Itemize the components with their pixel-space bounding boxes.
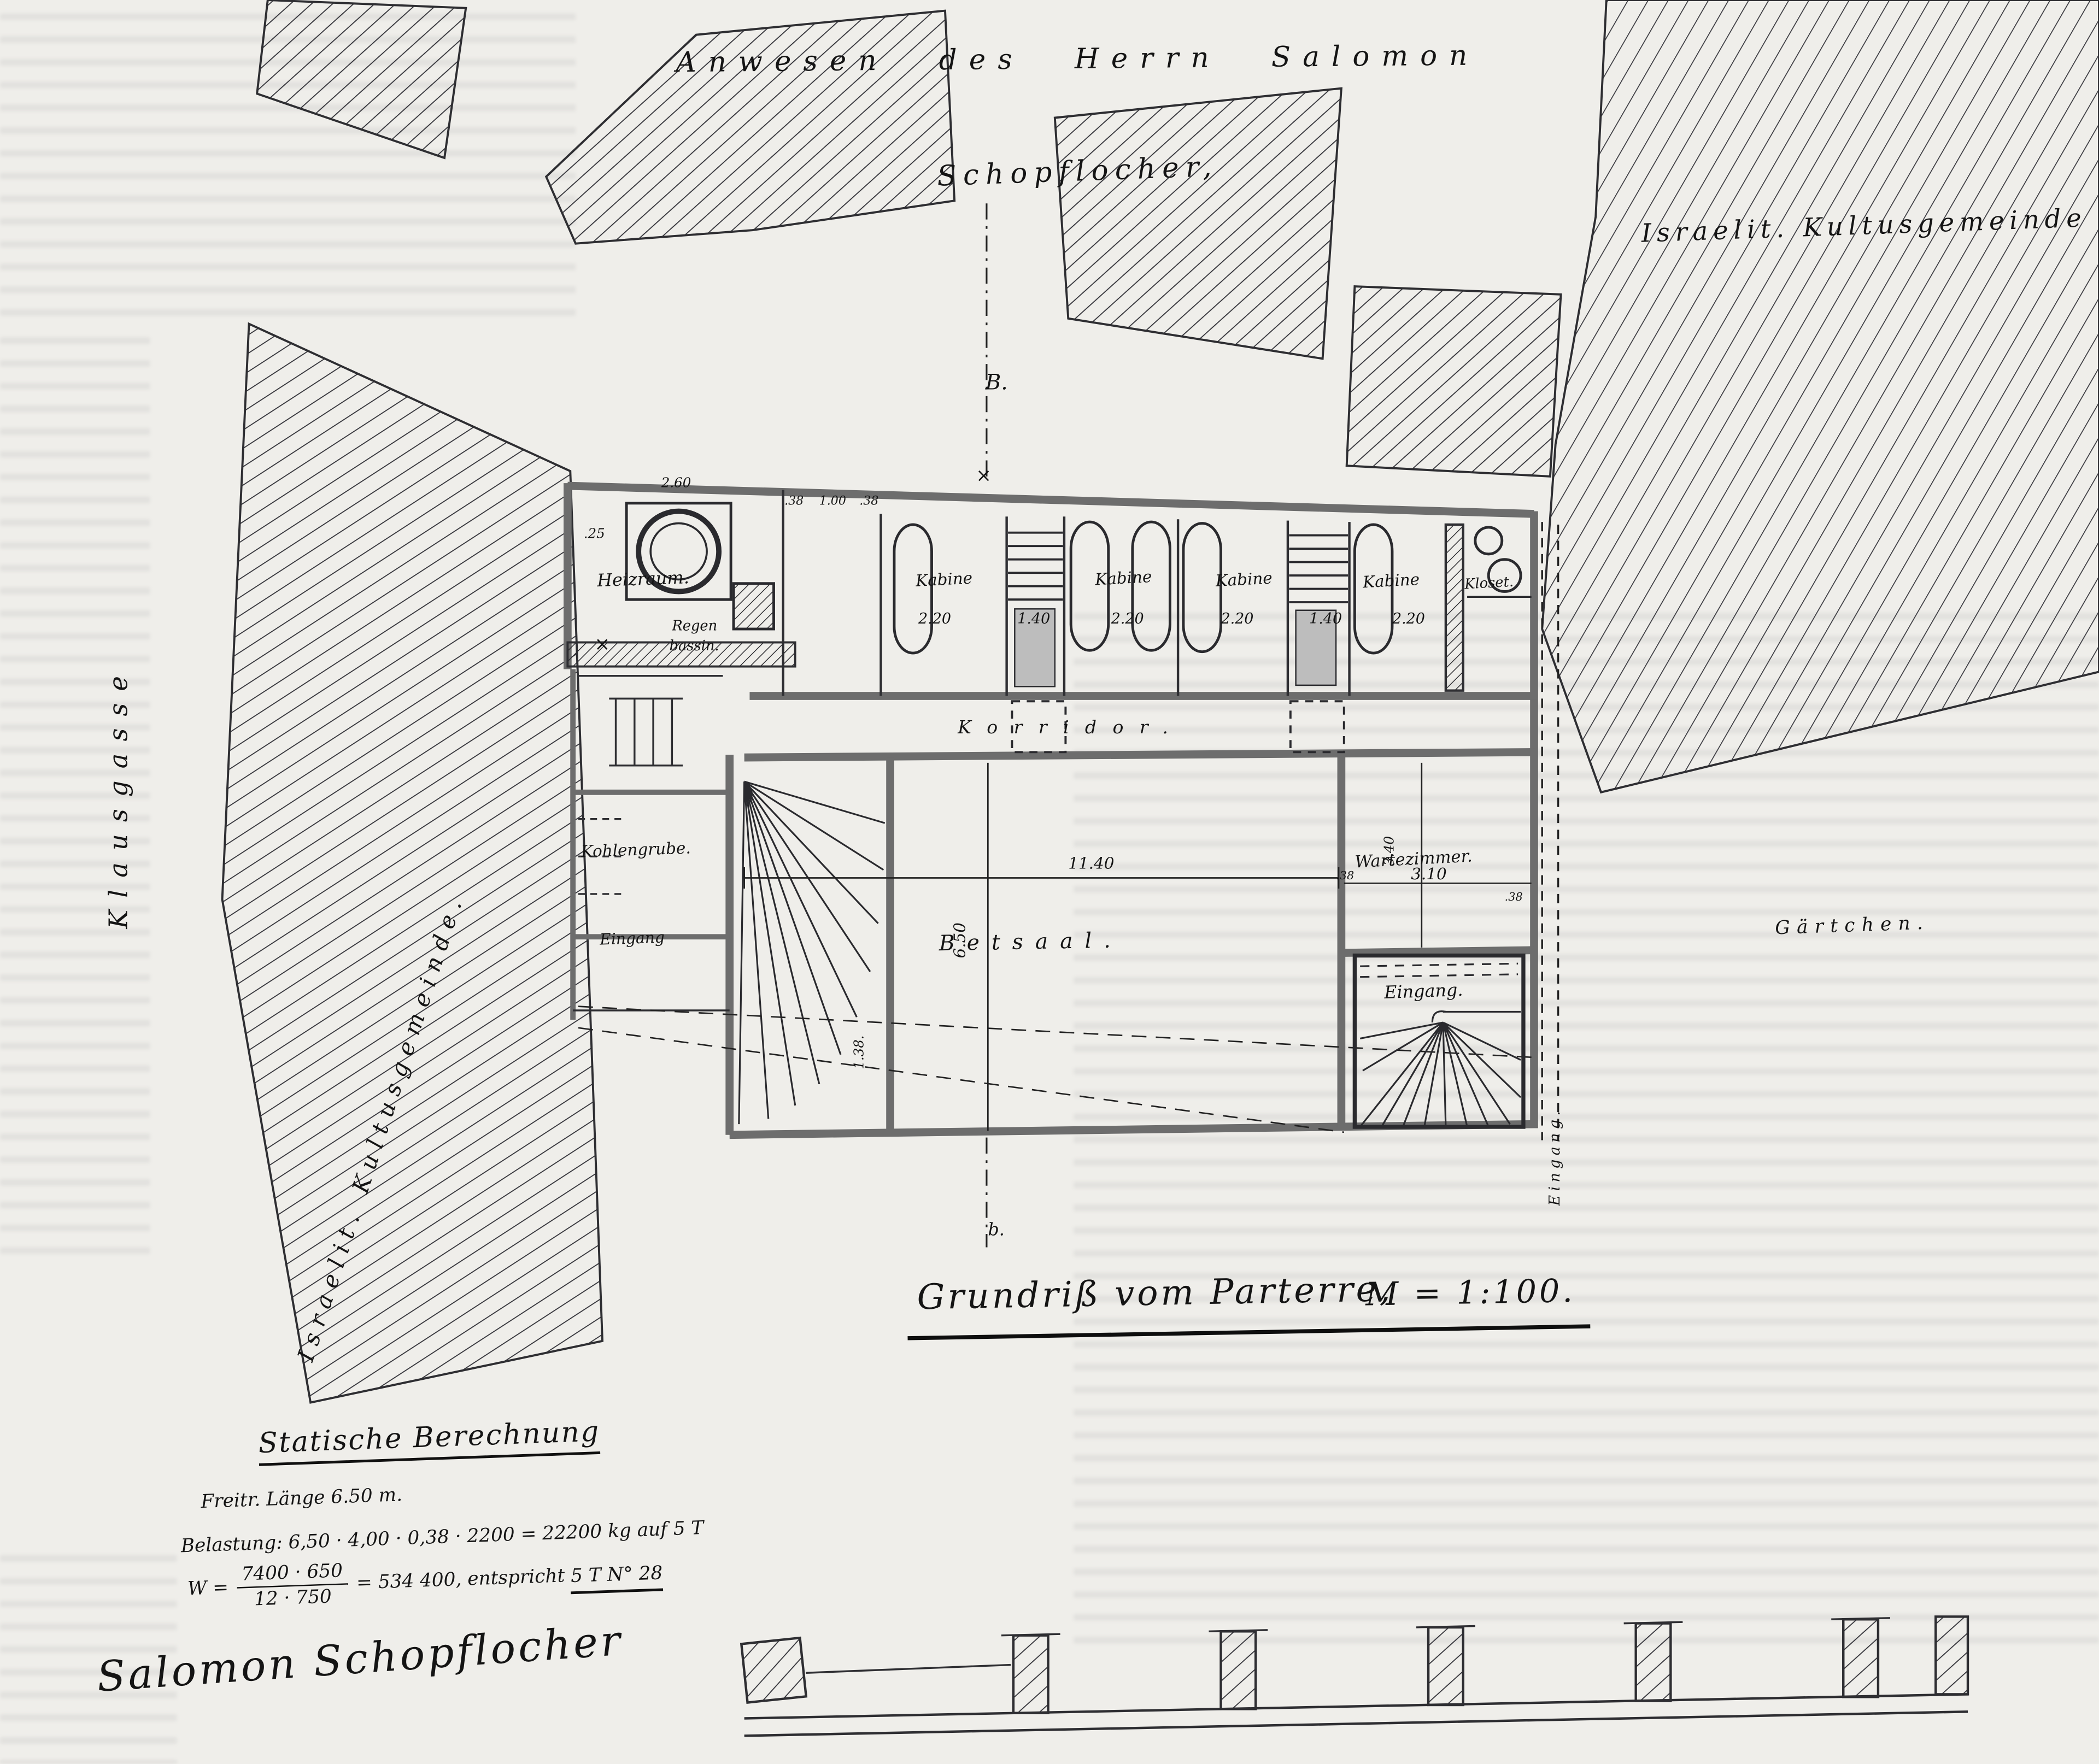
dim-38a: .38 bbox=[784, 495, 804, 508]
kabine-label-1: Kabine bbox=[915, 569, 973, 591]
dim-kabine-5: 1.40 bbox=[1309, 610, 1342, 628]
kabine-label-2: Kabine bbox=[1094, 567, 1152, 589]
plan-scale: M = 1:100. bbox=[1365, 1272, 1575, 1313]
dim-wartezimmer-width: 3.10 bbox=[1411, 865, 1446, 883]
dim-260: 2.60 bbox=[661, 477, 691, 491]
wall-block-left bbox=[741, 1638, 806, 1702]
dim-wz-38b: .38 bbox=[1505, 891, 1523, 904]
dim-38b: .38 bbox=[859, 495, 878, 508]
entrance-fan-stair bbox=[739, 781, 885, 1124]
dim-wartezimmer-depth: 3.40 bbox=[1383, 836, 1398, 866]
heizraum-label: Heizraum. bbox=[597, 568, 690, 592]
scanned-floor-plan-page: Anwesen des Herrn Salomon Schopflocher, … bbox=[0, 0, 2099, 1764]
eingang-stair-label: Eingang. bbox=[1384, 981, 1463, 1004]
boiler bbox=[626, 503, 773, 629]
parcel-left-klausgasse-side bbox=[222, 324, 603, 1403]
parcel-top-center bbox=[1055, 89, 1341, 359]
dim-hall-width: 11.40 bbox=[1068, 854, 1114, 872]
eingang-left-label: Eingang bbox=[600, 928, 665, 949]
dim-138: 1.38. bbox=[853, 1035, 867, 1069]
dim-kabine-3: 2.20 bbox=[1111, 610, 1144, 628]
kohlengrube-label: Kohlengrube. bbox=[581, 838, 691, 861]
dim-25: .25 bbox=[584, 527, 605, 542]
bath-wing-partitions bbox=[783, 490, 1463, 696]
parcel-top-small-right bbox=[1347, 286, 1561, 477]
regenbassin-label-1: Regen bbox=[672, 618, 717, 634]
kloset-partition-hatched bbox=[1446, 525, 1463, 691]
dim-kabine-2: 1.40 bbox=[1017, 610, 1050, 628]
kloset-label: Kloset. bbox=[1464, 574, 1514, 593]
section-marker-bottom: b. bbox=[988, 1220, 1005, 1240]
dim-100: 1.00 bbox=[819, 495, 846, 508]
retaining-wall-bottom bbox=[741, 1616, 1968, 1736]
statics-line3-result: 5 T N° 28 bbox=[570, 1562, 663, 1594]
kabine-label-3: Kabine bbox=[1215, 569, 1273, 591]
dim-kabine-4: 2.20 bbox=[1221, 610, 1253, 628]
neighbor-parcels-hatched bbox=[222, 0, 2099, 1403]
plan-title: Grundriß vom Parterre, bbox=[917, 1270, 1393, 1319]
x-mark-section: × bbox=[976, 466, 992, 487]
statics-line3-lead: W = bbox=[187, 1577, 228, 1600]
chimney-hatched bbox=[734, 584, 773, 629]
dim-hall-height: 6.50 bbox=[951, 922, 969, 958]
klausgasse-label: Klausgasse bbox=[104, 664, 134, 928]
section-marker-top: B. bbox=[985, 369, 1007, 395]
fraction-denominator: 12 · 750 bbox=[237, 1585, 349, 1612]
regenbassin-label-2: bassin. bbox=[669, 638, 719, 654]
dim-kabine-1: 2.20 bbox=[918, 610, 951, 628]
parcel-right-kultusgemeinde bbox=[1542, 0, 2099, 792]
x-mark-terrace: × bbox=[594, 634, 610, 656]
statics-line3-fraction: 7400 · 65012 · 750 bbox=[236, 1561, 349, 1612]
fraction-numerator: 7400 · 650 bbox=[236, 1561, 348, 1589]
parcel-top-left-small bbox=[257, 0, 466, 158]
kabine-label-4: Kabine bbox=[1362, 570, 1420, 592]
dim-wz-38a: .38 bbox=[1336, 870, 1354, 883]
eingang-side-label: Eingang. bbox=[1546, 1107, 1564, 1206]
dim-kabine-6: 2.20 bbox=[1392, 610, 1425, 628]
korridor-label: Korridor. bbox=[883, 718, 1258, 739]
statics-line3-mid: = 534 400, entspricht bbox=[356, 1566, 565, 1594]
